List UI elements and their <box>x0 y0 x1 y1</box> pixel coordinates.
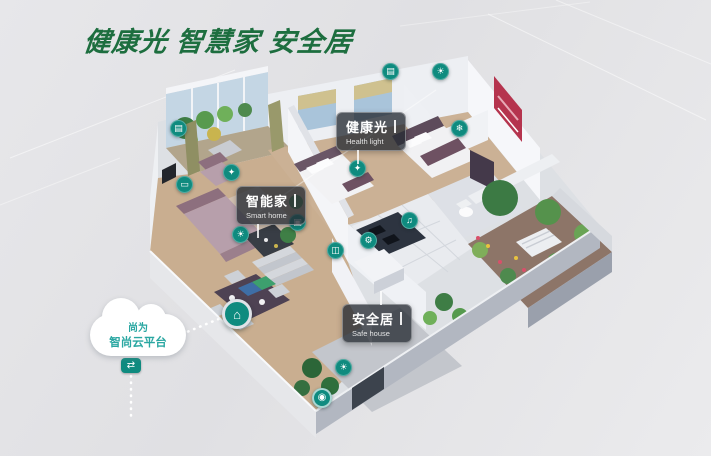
lamp-icon: ✦ <box>223 164 240 181</box>
cursor-bar <box>400 312 402 325</box>
light-icon: ☀ <box>335 359 352 376</box>
smart-home-3d-illustration <box>0 0 711 456</box>
zone-label-en: Smart home <box>246 211 296 220</box>
light-icon: ☀ <box>432 63 449 80</box>
zone-label-zh: 安全居 <box>352 309 394 328</box>
zone-label-en: Safe house <box>352 329 402 338</box>
zone-label-smart-home: 智能家 Smart home <box>236 186 306 225</box>
cursor-bar <box>394 120 396 133</box>
cloud-platform: 尚为 智尚云平台 <box>88 296 188 362</box>
appliance-icon: ⚙ <box>360 232 377 249</box>
curtain-icon: ▤ <box>170 120 187 137</box>
cloud-platform-name: 智尚云平台 <box>109 334 167 350</box>
zone-label-zh: 智能家 <box>246 191 288 210</box>
zone-label-en: Health light <box>346 137 396 146</box>
zone-label-safe-house: 安全居 Safe house <box>342 304 412 343</box>
pointer-stem <box>357 150 359 164</box>
tv-icon: ▭ <box>176 176 193 193</box>
light-icon: ☀ <box>232 226 249 243</box>
window-sensor-icon: ◫ <box>327 242 344 259</box>
door-lock-icon: ◉ <box>312 388 332 408</box>
gateway-hub-icon: ⌂ <box>222 299 252 329</box>
page-title: 健康光 智慧家 安全居 <box>82 20 355 59</box>
zone-label-zh: 健康光 <box>346 117 388 136</box>
zone-label-health-light: 健康光 Health light <box>336 112 406 151</box>
cloud-platform-brand: 尚为 <box>128 319 148 334</box>
pointer-stem <box>257 224 259 238</box>
smart-home-banner: 健康光 智慧家 安全居 <box>0 0 711 456</box>
pointer-stem <box>380 291 382 305</box>
ac-icon: ❄ <box>451 120 468 137</box>
speaker-icon: ♫ <box>401 212 418 229</box>
cursor-bar <box>294 194 296 207</box>
curtain-icon: ▤ <box>382 63 399 80</box>
